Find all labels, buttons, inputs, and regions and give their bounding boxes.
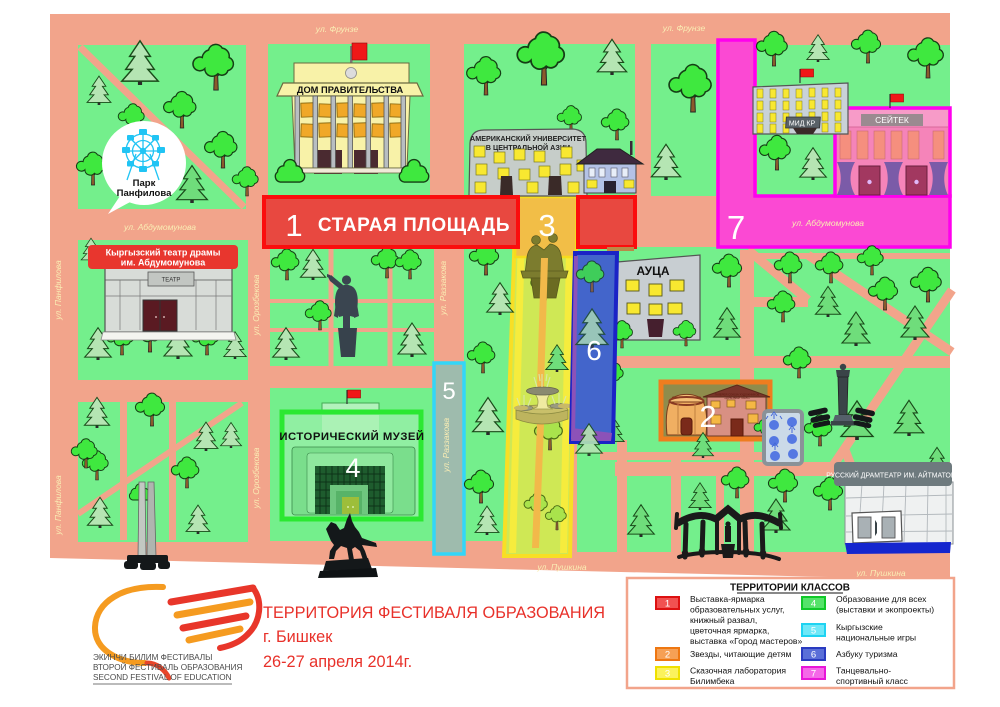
svg-text:7: 7 (727, 209, 745, 246)
svg-text:В ЦЕНТРАЛЬНОЙ АЗИИ: В ЦЕНТРАЛЬНОЙ АЗИИ (486, 143, 570, 152)
svg-text:выставка «Город мастеров»: выставка «Город мастеров» (690, 636, 802, 646)
svg-text:ТЕРРИТОРИЯ ФЕСТИВАЛЯ ОБРАЗОВАН: ТЕРРИТОРИЯ ФЕСТИВАЛЯ ОБРАЗОВАНИЯ (263, 604, 605, 622)
svg-text:ул. Фрунзе: ул. Фрунзе (662, 23, 706, 33)
svg-text:ТЕАТР: ТЕАТР (162, 278, 181, 284)
svg-text:ул. Раззакова: ул. Раззакова (438, 261, 448, 316)
svg-text:Образование для всех: Образование для всех (836, 594, 927, 604)
svg-text:Кыргызский театр драмы: Кыргызский театр драмы (106, 248, 221, 258)
svg-text:им. Абдумомунова: им. Абдумомунова (121, 258, 206, 268)
svg-text:26-27 апреля 2014г.: 26-27 апреля 2014г. (263, 653, 412, 671)
svg-text:ул. Орозбекова: ул. Орозбекова (251, 447, 261, 509)
svg-text:Звезды, читающие детям: Звезды, читающие детям (690, 649, 791, 659)
svg-text:SECOND FESTIVAL OF EDUCATION: SECOND FESTIVAL OF EDUCATION (93, 673, 232, 682)
svg-text:Выставка-ярмарка: Выставка-ярмарка (690, 594, 765, 604)
svg-text:1: 1 (665, 599, 670, 610)
svg-text:6: 6 (811, 650, 816, 661)
svg-text:ул. Панфилова: ул. Панфилова (53, 260, 63, 321)
svg-text:ул. Абдумомунова: ул. Абдумомунова (123, 222, 196, 232)
svg-text:РУССКИЙ ДРАМТЕАТР ИМ. АЙТМАТОВ: РУССКИЙ ДРАМТЕАТР ИМ. АЙТМАТОВА (826, 471, 960, 480)
svg-text:АМЕРИКАНСКИЙ УНИВЕРСИТЕТ: АМЕРИКАНСКИЙ УНИВЕРСИТЕТ (470, 134, 587, 143)
svg-text:ДОМ ПРАВИТЕЛЬСТВА: ДОМ ПРАВИТЕЛЬСТВА (297, 85, 404, 95)
svg-text:книжный развал,: книжный развал, (690, 615, 757, 625)
svg-text:Билимбека: Билимбека (690, 676, 735, 686)
svg-text:цветочная ярмарка,: цветочная ярмарка, (690, 626, 769, 636)
svg-text:3: 3 (538, 208, 555, 243)
svg-text:2: 2 (665, 650, 670, 661)
svg-text:ул. Фрунзе: ул. Фрунзе (315, 24, 359, 34)
svg-text:4: 4 (811, 599, 816, 610)
svg-text:«ДУБОВЫЙ ПАРК»: «ДУБОВЫЙ ПАРК» (724, 396, 750, 400)
svg-text:ул. Абдумомунова: ул. Абдумомунова (791, 218, 864, 228)
svg-text:ул. Пушкина: ул. Пушкина (536, 562, 587, 572)
svg-text:г. Бишкек: г. Бишкек (263, 628, 333, 646)
svg-text:спортивный класс: спортивный класс (836, 676, 909, 686)
svg-text:СТАРАЯ ПЛОЩАДЬ: СТАРАЯ ПЛОЩАДЬ (318, 215, 510, 236)
svg-text:5: 5 (811, 626, 816, 637)
svg-text:ул. Раззакова: ул. Раззакова (441, 418, 451, 473)
svg-text:(выставки и экопроекты): (выставки и экопроекты) (836, 605, 934, 615)
svg-text:Кыргызские: Кыргызские (836, 622, 883, 632)
svg-text:7: 7 (811, 669, 816, 680)
svg-text:4: 4 (345, 453, 360, 483)
svg-text:1: 1 (285, 208, 302, 243)
svg-text:Азбуку туризма: Азбуку туризма (836, 649, 898, 659)
svg-text:АУЦА: АУЦА (636, 264, 669, 278)
svg-text:ТЕРРИТОРИИ КЛАССОВ: ТЕРРИТОРИИ КЛАССОВ (730, 583, 850, 594)
svg-text:ул. Орозбекова: ул. Орозбекова (251, 274, 261, 336)
svg-text:2: 2 (699, 399, 716, 434)
svg-text:МИД КР: МИД КР (789, 121, 816, 128)
svg-text:Танцевально-: Танцевально- (836, 666, 891, 676)
svg-text:национальные игры: национальные игры (836, 633, 916, 643)
svg-text:5: 5 (442, 378, 455, 405)
svg-text:Сказочная лаборатория: Сказочная лаборатория (690, 666, 786, 676)
svg-text:ВТОРОЙ ФЕСТИВАЛЬ ОБРАЗОВАНИЯ: ВТОРОЙ ФЕСТИВАЛЬ ОБРАЗОВАНИЯ (93, 661, 242, 672)
svg-text:6: 6 (586, 335, 602, 366)
svg-text:ИСТОРИЧЕСКИЙ МУЗЕЙ: ИСТОРИЧЕСКИЙ МУЗЕЙ (279, 430, 424, 443)
svg-text:Панфилова: Панфилова (117, 188, 172, 199)
svg-text:ЭКИНЧИ БИЛИМ ФЕСТИВАЛЫ: ЭКИНЧИ БИЛИМ ФЕСТИВАЛЫ (93, 653, 212, 662)
svg-text:3: 3 (665, 669, 670, 680)
svg-text:ул. Панфилова: ул. Панфилова (53, 475, 63, 536)
svg-text:образовательных услуг,: образовательных услуг, (690, 605, 785, 615)
svg-text:СЕЙТЕК: СЕЙТЕК (875, 114, 909, 125)
svg-text:ул. Пушкина: ул. Пушкина (855, 568, 906, 578)
